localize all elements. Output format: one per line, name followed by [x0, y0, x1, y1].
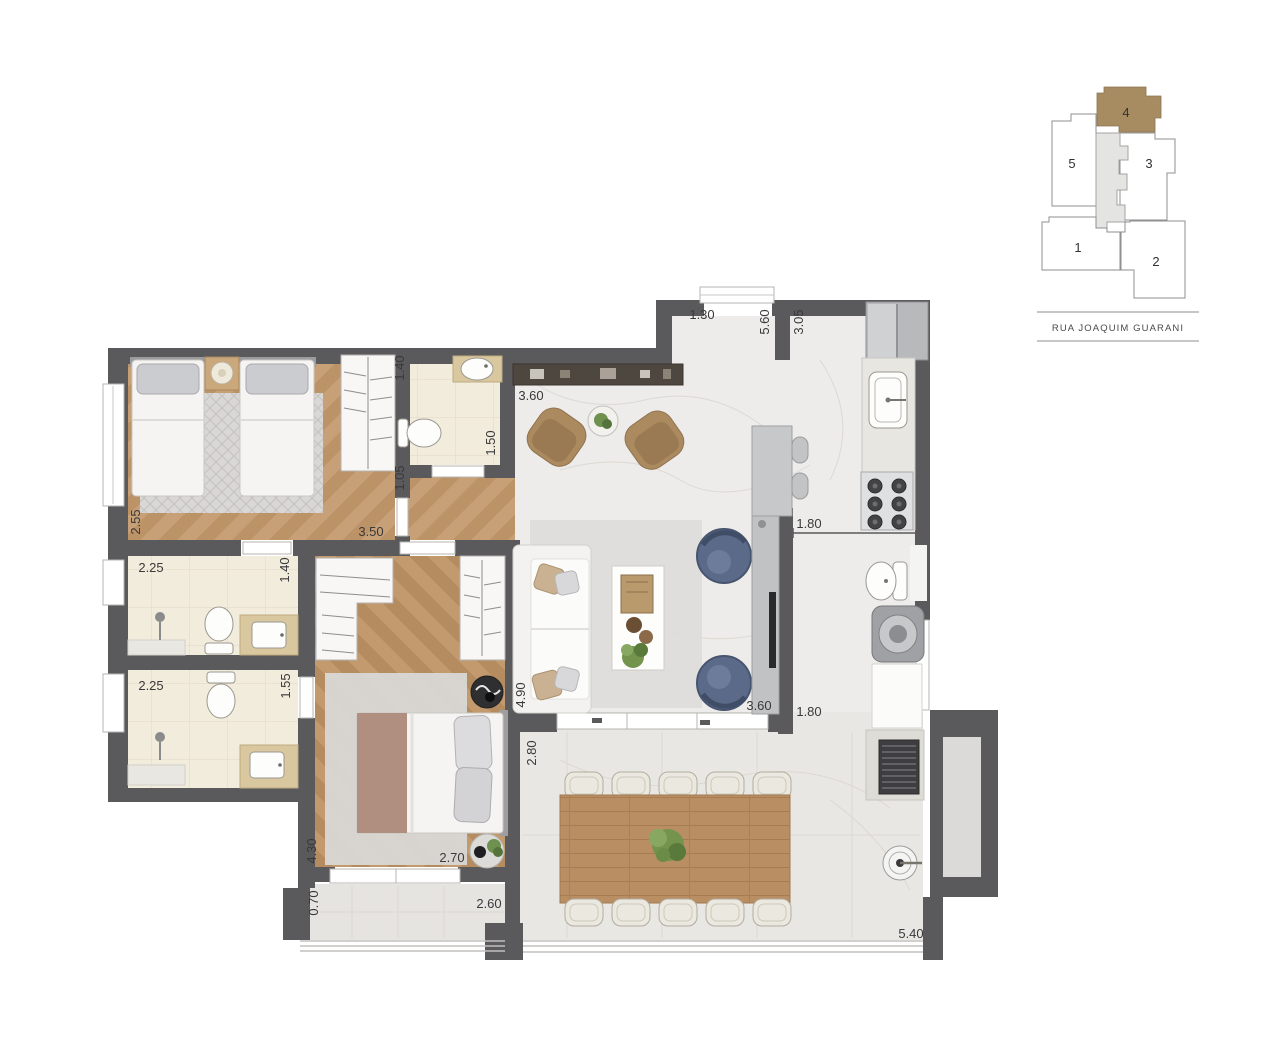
- dim-label: 2.25: [138, 560, 163, 575]
- kitchen-sink: [869, 372, 907, 428]
- hall-floor: [408, 477, 500, 540]
- nightstand: [205, 357, 239, 390]
- bathroom3-window: [103, 674, 124, 732]
- bathroom3-door: [300, 677, 313, 718]
- dim-label: 1.80: [796, 704, 821, 719]
- lounge-chair-blue-1: [697, 529, 751, 583]
- unit-label: 4: [1122, 105, 1129, 120]
- unit-label: 5: [1068, 156, 1075, 171]
- hall-opening-floor: [500, 477, 515, 540]
- bathroom2-door: [243, 542, 291, 554]
- sink: [461, 358, 493, 380]
- dim-label: 2.60: [476, 896, 501, 911]
- dim-label: 5.40: [898, 926, 923, 941]
- vanity: [240, 615, 298, 655]
- unit-label: 2: [1152, 254, 1159, 269]
- twin-bed-1: [130, 357, 206, 496]
- dining-chairs-bottom: [565, 899, 791, 926]
- dim-label: 3.60: [746, 698, 771, 713]
- bathroom1-door: [432, 466, 484, 477]
- fridge: [866, 302, 928, 360]
- dim-label: 2.70: [439, 850, 464, 865]
- tv: [769, 592, 776, 668]
- vanity: [240, 745, 298, 788]
- living-sliding-door: [557, 713, 768, 729]
- dim-label: 1.55: [278, 673, 293, 698]
- washing-machine: [872, 606, 924, 662]
- bedroom1-door: [397, 498, 408, 536]
- dim-label: 0.70: [306, 890, 321, 915]
- double-bed: [357, 710, 508, 836]
- dim-label: 2.25: [138, 678, 163, 693]
- toilet: [205, 607, 233, 654]
- round-table: [588, 406, 618, 436]
- dim-label: 1.30: [689, 307, 714, 322]
- barbecue-grill: [879, 740, 919, 794]
- balcony-sliding-door: [330, 869, 460, 883]
- terrace-railing: [523, 941, 923, 952]
- dim-label: 3.60: [518, 388, 543, 403]
- dim-label: 3.50: [358, 524, 383, 539]
- dim-label: 4.90: [513, 682, 528, 707]
- toilet: [398, 419, 441, 447]
- dim-label: 2.80: [524, 740, 539, 765]
- wardrobe: [341, 355, 395, 471]
- unit-label: 3: [1145, 156, 1152, 171]
- street-name: RUA JOAQUIM GUARANI: [1052, 323, 1184, 334]
- dim-label: 5.60: [757, 309, 772, 334]
- dim-label: 4.30: [304, 838, 319, 863]
- wardrobe: [460, 556, 505, 660]
- twin-bed-2: [238, 357, 316, 496]
- lounge-chair-blue-2: [697, 656, 751, 710]
- service-counter: [872, 664, 922, 728]
- side-table-bottom: [470, 834, 504, 868]
- lavabo-toilet: [866, 562, 907, 600]
- dim-label: 1.05: [392, 465, 407, 490]
- dim-label: 1.40: [392, 355, 407, 380]
- balcony-railing: [300, 941, 505, 951]
- wall-niche: [943, 737, 981, 877]
- wall-recess: [910, 545, 927, 601]
- floorplan-page: 1.30 5.60 3.05 3.60 1.40 1.50 1.05 2.55 …: [0, 0, 1280, 1059]
- master-door: [400, 542, 455, 554]
- bar-stool: [792, 473, 808, 499]
- dim-label: 2.55: [128, 509, 143, 534]
- dim-label: 1.50: [483, 430, 498, 455]
- unit-label: 1: [1074, 240, 1081, 255]
- key-plan: 5 3 4 1 2 RUA JOAQUIM GUARANI: [1037, 87, 1199, 341]
- toilet: [207, 672, 235, 718]
- bathroom2-window: [103, 560, 124, 605]
- dim-label: 1.80: [796, 516, 821, 531]
- side-table-top: [471, 676, 503, 708]
- dim-label: 1.40: [277, 557, 292, 582]
- cooktop: [861, 472, 913, 530]
- core: [1096, 133, 1128, 232]
- floorplan-drawing: 1.30 5.60 3.05 3.60 1.40 1.50 1.05 2.55 …: [0, 0, 1280, 1059]
- coffee-table: [612, 566, 664, 670]
- dim-label: 3.05: [791, 309, 806, 334]
- bar-stool: [792, 437, 808, 463]
- street-label: RUA JOAQUIM GUARANI: [1037, 312, 1199, 341]
